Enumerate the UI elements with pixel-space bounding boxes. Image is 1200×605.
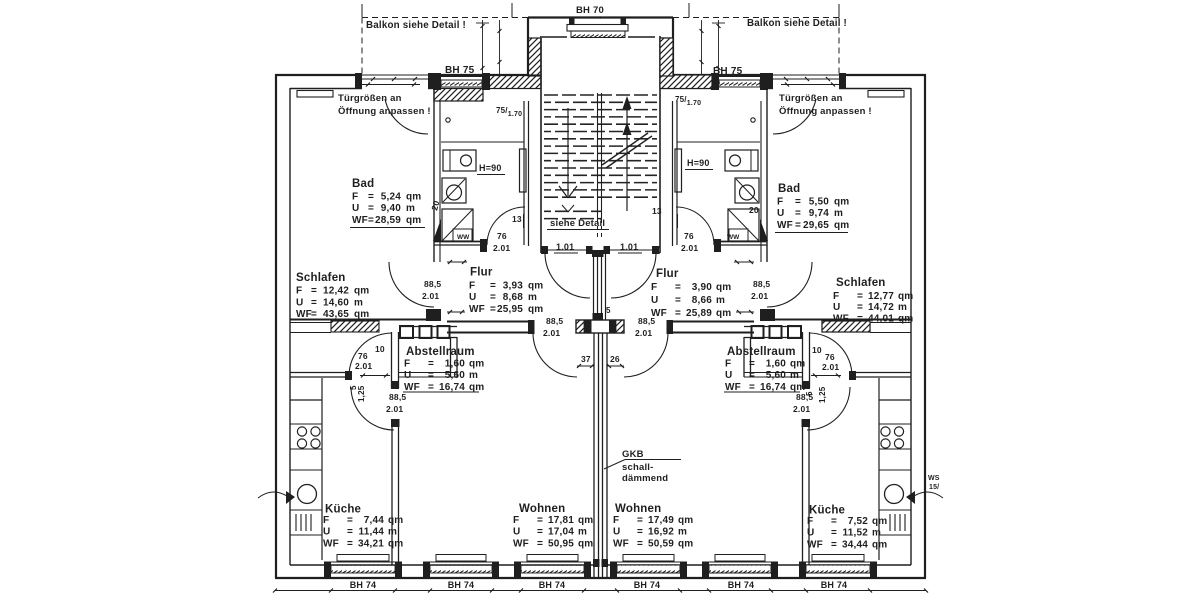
svg-text:H=90: H=90 [479, 163, 502, 173]
svg-text:F=3,90qm: F=3,90qm [651, 282, 731, 293]
svg-text:88,5: 88,5 [753, 279, 770, 289]
svg-text:5: 5 [606, 306, 611, 315]
svg-text:1.01: 1.01 [556, 242, 574, 252]
svg-text:Balkon siehe Detail !: Balkon siehe Detail ! [366, 20, 466, 31]
svg-text:BH 74: BH 74 [350, 580, 377, 590]
svg-text:5: 5 [805, 391, 814, 396]
svg-text:F=7,52qm: F=7,52qm [807, 516, 887, 527]
svg-text:U=9,40m: U=9,40m [352, 203, 415, 214]
svg-text:Abstellraum: Abstellraum [406, 346, 475, 358]
svg-text:Türgrößen an: Türgrößen an [779, 93, 843, 104]
svg-text:F=12,42qm: F=12,42qm [296, 286, 369, 297]
svg-text:F=1,60qm: F=1,60qm [725, 359, 805, 370]
svg-text:GKB: GKB [622, 449, 644, 460]
svg-text:WF=34,21qm: WF=34,21qm [323, 538, 403, 549]
svg-text:siehe Detail: siehe Detail [550, 218, 605, 229]
svg-text:76: 76 [497, 231, 507, 241]
svg-text:88,5: 88,5 [389, 392, 406, 402]
svg-text:WS: WS [928, 475, 940, 482]
svg-text:13: 13 [652, 206, 662, 216]
svg-text:5: 5 [349, 385, 358, 390]
svg-text:H=90: H=90 [687, 158, 710, 168]
svg-text:F=1,60qm: F=1,60qm [404, 359, 484, 370]
svg-text:U=11,52m: U=11,52m [807, 528, 881, 539]
svg-text:schall-: schall- [622, 462, 654, 473]
svg-text:BH 70: BH 70 [576, 5, 604, 16]
svg-text:WF=50,59qm: WF=50,59qm [613, 538, 693, 549]
svg-text:U=14,60m: U=14,60m [296, 297, 363, 308]
svg-text:13: 13 [512, 214, 522, 224]
svg-text:WF=16,74qm: WF=16,74qm [725, 382, 805, 393]
svg-text:F=17,81qm: F=17,81qm [513, 515, 593, 526]
svg-text:Schlafen: Schlafen [296, 272, 346, 284]
svg-text:2.01: 2.01 [751, 291, 768, 301]
svg-text:2.01: 2.01 [493, 243, 510, 253]
svg-text:76: 76 [684, 231, 694, 241]
svg-text:Schlafen: Schlafen [836, 277, 886, 289]
svg-text:BH 75: BH 75 [445, 65, 475, 76]
svg-text:76: 76 [358, 351, 368, 361]
svg-text:2.01: 2.01 [635, 328, 652, 338]
svg-text:2.01: 2.01 [386, 404, 403, 414]
svg-text:Abstellraum: Abstellraum [727, 346, 796, 358]
svg-text:Flur: Flur [656, 268, 679, 280]
svg-text:2.01: 2.01 [422, 291, 439, 301]
svg-text:WW: WW [457, 234, 470, 241]
svg-text:15/: 15/ [929, 484, 939, 491]
svg-text:BH 75: BH 75 [713, 66, 743, 77]
svg-text:Balkon siehe Detail !: Balkon siehe Detail ! [747, 18, 847, 29]
svg-text:BH 74: BH 74 [634, 580, 661, 590]
svg-text:U=8,68m: U=8,68m [469, 292, 537, 303]
svg-text:F=5,50qm: F=5,50qm [777, 197, 849, 208]
svg-text:10: 10 [375, 344, 385, 354]
svg-text:Wohnen: Wohnen [519, 503, 565, 515]
svg-text:2.01: 2.01 [793, 404, 810, 414]
svg-text:Küche: Küche [325, 504, 361, 516]
svg-text:WF=29,65qm: WF=29,65qm [777, 220, 849, 231]
svg-text:WF=25,95qm: WF=25,95qm [469, 304, 543, 315]
svg-text:F=7,44qm: F=7,44qm [323, 515, 403, 526]
svg-text:WF=25,89qm: WF=25,89qm [651, 308, 731, 319]
svg-text:Öffnung anpassen !: Öffnung anpassen ! [779, 106, 872, 117]
svg-text:2.01: 2.01 [822, 362, 839, 372]
svg-text:F=12,77qm: F=12,77qm [833, 291, 913, 302]
svg-text:Küche: Küche [809, 505, 845, 517]
svg-text:BH 74: BH 74 [539, 580, 566, 590]
svg-text:2.01: 2.01 [355, 361, 372, 371]
svg-text:75/1.70: 75/1.70 [675, 95, 701, 107]
svg-text:WF=43,65qm: WF=43,65qm [296, 309, 369, 320]
svg-text:Öffnung anpassen !: Öffnung anpassen ! [338, 106, 431, 117]
svg-text:1.01: 1.01 [620, 242, 638, 252]
svg-text:F=17,49qm: F=17,49qm [613, 515, 693, 526]
svg-text:Türgrößen an: Türgrößen an [338, 93, 402, 104]
svg-text:1,25: 1,25 [357, 385, 366, 402]
svg-text:88,5: 88,5 [546, 316, 563, 326]
svg-text:U=14,72m: U=14,72m [833, 302, 907, 313]
svg-text:26: 26 [610, 354, 620, 364]
svg-text:WF=34,44qm: WF=34,44qm [807, 539, 887, 550]
svg-text:U=11,44m: U=11,44m [323, 527, 397, 538]
svg-text:10: 10 [812, 345, 822, 355]
svg-text:BH 74: BH 74 [728, 580, 755, 590]
svg-text:Bad: Bad [352, 178, 374, 190]
svg-text:BH 74: BH 74 [821, 580, 848, 590]
svg-text:BH 74: BH 74 [448, 580, 475, 590]
svg-text:U=16,92m: U=16,92m [613, 527, 687, 538]
svg-text:Flur: Flur [470, 267, 493, 279]
svg-text:20: 20 [749, 205, 759, 215]
svg-text:37: 37 [581, 354, 591, 364]
svg-text:U=5,60m: U=5,60m [404, 370, 478, 381]
svg-text:WF=50,95qm: WF=50,95qm [513, 538, 593, 549]
svg-text:WF=28,59qm: WF=28,59qm [352, 215, 421, 226]
svg-text:WF=44,01qm: WF=44,01qm [833, 313, 913, 324]
svg-text:88,5: 88,5 [424, 279, 441, 289]
svg-text:U=8,66m: U=8,66m [651, 295, 725, 306]
svg-text:WF=16,74qm: WF=16,74qm [404, 382, 484, 393]
svg-text:U=17,04m: U=17,04m [513, 527, 587, 538]
svg-text:76: 76 [825, 352, 835, 362]
svg-text:88,5: 88,5 [638, 316, 655, 326]
svg-text:dämmend: dämmend [622, 473, 668, 484]
svg-text:F=5,24qm: F=5,24qm [352, 192, 421, 203]
svg-text:U=9,74m: U=9,74m [777, 208, 843, 219]
svg-text:U=5,60m: U=5,60m [725, 370, 799, 381]
svg-text:F=3,93qm: F=3,93qm [469, 281, 543, 292]
svg-text:75/1.70: 75/1.70 [496, 106, 522, 118]
svg-text:2.01: 2.01 [681, 243, 698, 253]
svg-text:Wohnen: Wohnen [615, 503, 661, 515]
svg-text:1,25: 1,25 [818, 386, 827, 403]
svg-text:WW: WW [727, 234, 740, 241]
svg-text:2.01: 2.01 [543, 328, 560, 338]
svg-text:Bad: Bad [778, 183, 800, 195]
